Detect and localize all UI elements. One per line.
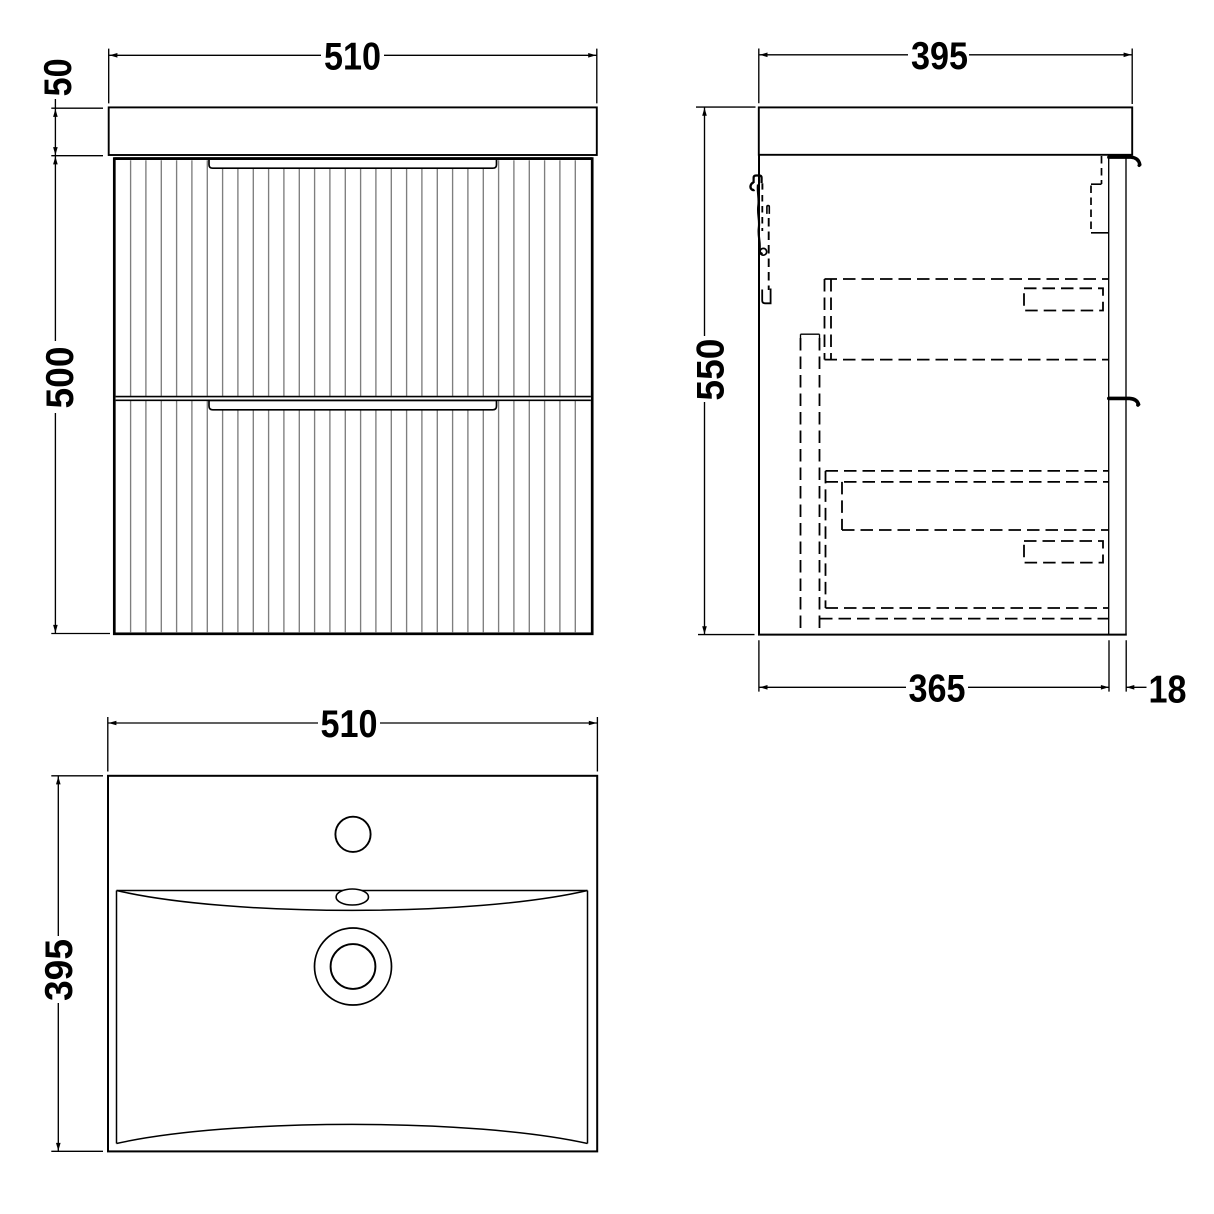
svg-text:365: 365 bbox=[909, 667, 966, 710]
svg-text:50: 50 bbox=[37, 58, 80, 96]
svg-text:510: 510 bbox=[324, 35, 381, 78]
svg-text:500: 500 bbox=[39, 347, 82, 409]
svg-text:18: 18 bbox=[1149, 669, 1187, 712]
svg-text:395: 395 bbox=[38, 939, 81, 1001]
svg-text:395: 395 bbox=[911, 35, 968, 78]
svg-text:510: 510 bbox=[321, 703, 378, 746]
svg-text:550: 550 bbox=[689, 339, 732, 401]
